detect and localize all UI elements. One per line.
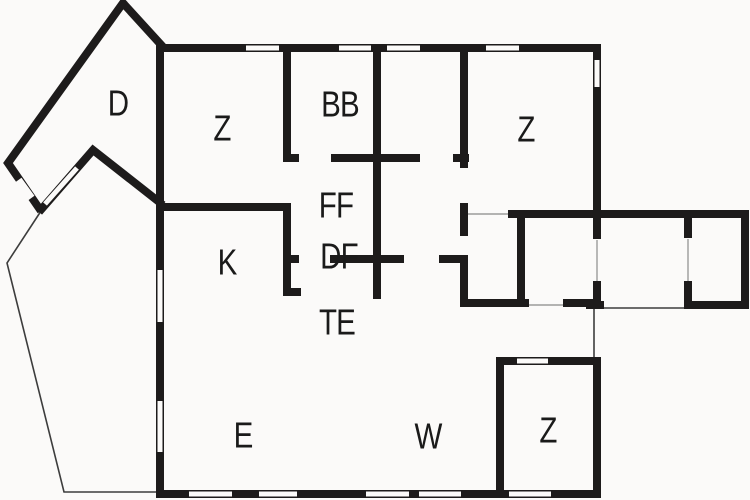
room-label-z-bottom: Z [539, 413, 556, 449]
room-label-df: DF [320, 239, 358, 275]
room-label-k: K [218, 245, 237, 281]
floorplan-canvas [0, 0, 750, 500]
door-openings [17, 181, 30, 199]
room-label-z-top-left: Z [213, 111, 230, 147]
room-label-d: D [108, 86, 129, 122]
room-label-te: TE [319, 305, 355, 341]
room-label-e: E [234, 418, 253, 454]
room-label-z-top-right: Z [517, 112, 534, 148]
room-label-ff: FF [319, 188, 353, 224]
terrace-outline [7, 211, 594, 492]
room-label-w: W [414, 419, 441, 455]
walls-group [8, 3, 749, 498]
sill-lines [468, 214, 688, 308]
floor-plan: D Z BB Z FF K DF TE E W Z [0, 0, 750, 500]
room-label-bb: BB [321, 87, 359, 123]
